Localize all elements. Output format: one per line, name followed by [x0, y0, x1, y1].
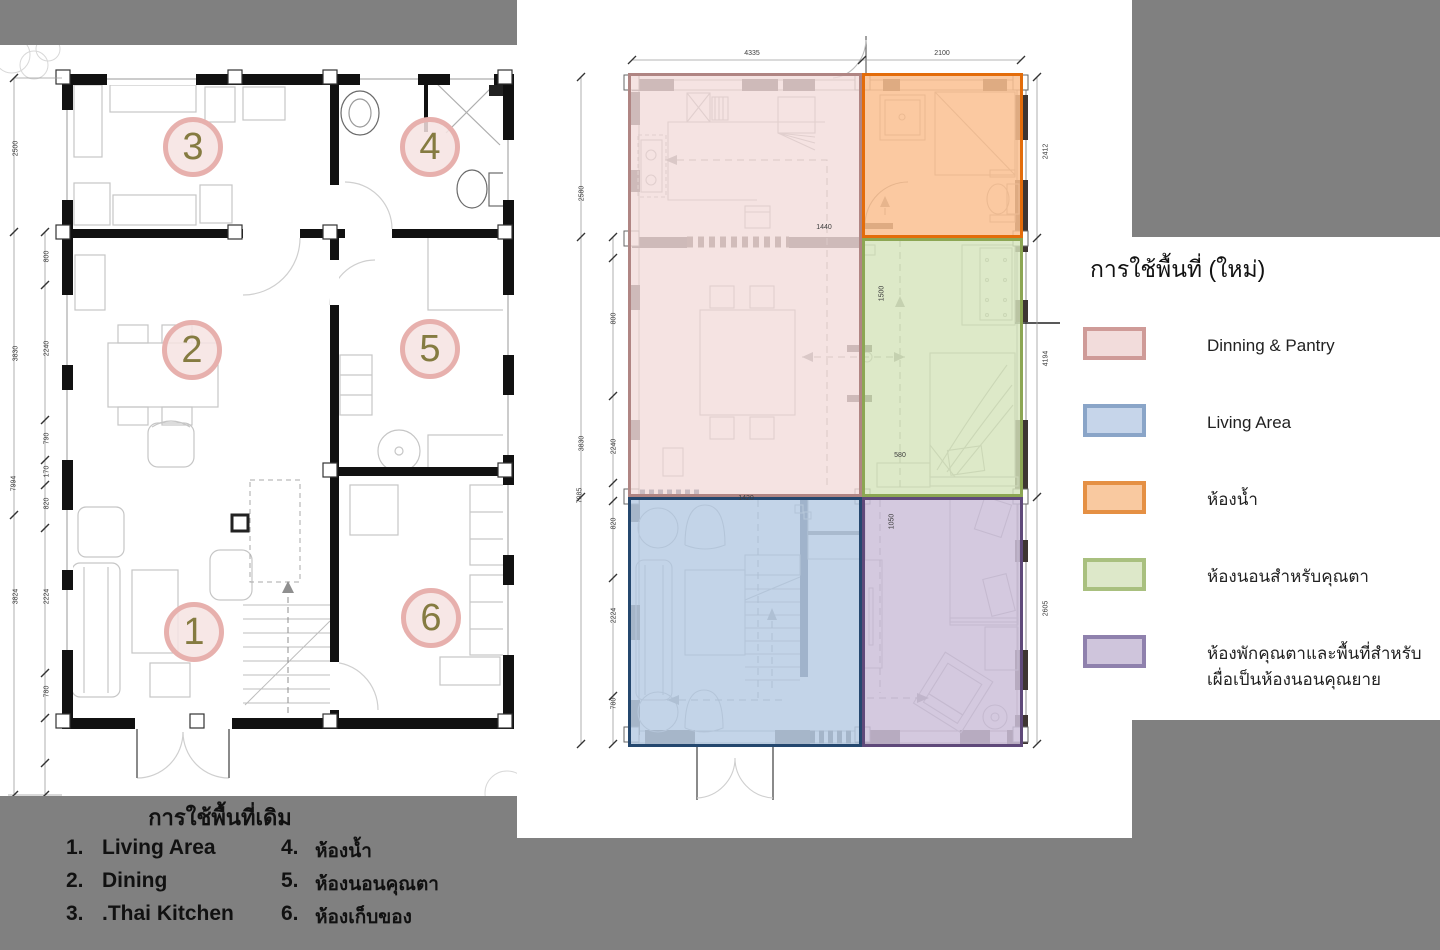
dimension-label: 2240 [44, 332, 51, 366]
dimension-label: 2100 [925, 50, 959, 57]
caption-item-number: 5. [281, 869, 313, 893]
room-marker-1: 1 [164, 602, 224, 662]
legend-label: Dinning & Pantry [1207, 336, 1335, 355]
room-marker-5: 5 [400, 319, 460, 379]
caption-item-label: ห้องนอนคุณตา [315, 869, 439, 899]
hall-column [232, 515, 248, 531]
room-number: 3 [182, 128, 203, 166]
room-number: 4 [419, 128, 440, 166]
caption-title: การใช้พื้นที่เดิม [70, 800, 370, 835]
legend-label: ห้องน้ำ [1207, 490, 1258, 509]
zone-living-area [628, 497, 862, 747]
original-plan-panel: 3 4 2 5 1 6 2500383079943824800224079017… [0, 45, 517, 796]
dimension-label: 2224 [44, 580, 51, 614]
legend-item-dining-pantry: Dinning & Pantry [1083, 327, 1440, 369]
legend-item-bathroom: ห้องน้ำ [1083, 481, 1440, 523]
zone-dining-pantry [628, 73, 862, 497]
caption-item-number: 4. [281, 836, 313, 860]
dimension-label: 2580 [579, 177, 586, 211]
caption-row: 3. .Thai Kitchen 6. ห้องเก็บของ [0, 902, 517, 934]
dimension-label: 820 [44, 487, 51, 521]
caption-item-label: ห้องน้ำ [315, 836, 372, 866]
caption-item-number: 1. [66, 836, 98, 860]
dimension-label: 3830 [13, 337, 20, 371]
legend-title: การใช้พื้นที่ (ใหม่) [1090, 252, 1265, 288]
dimension-label: 790 [44, 422, 51, 456]
stairs-original [243, 480, 330, 713]
legend-label: ห้องพักคุณตาและพื้นที่สำหรับ [1207, 644, 1422, 663]
zone-bathroom [862, 73, 1023, 238]
legend-label: Living Area [1207, 413, 1291, 432]
caption-row: 1. Living Area 4. ห้องน้ำ [0, 836, 517, 868]
dimension-label: 2224 [611, 599, 618, 633]
dimension-label: 3830 [579, 427, 586, 461]
dimension-label: 170 [44, 455, 51, 489]
room-marker-6: 6 [401, 588, 461, 648]
dimension-label: 820 [611, 507, 618, 541]
dimension-label: 1440 [807, 224, 841, 231]
dimension-label: 4194 [1043, 342, 1050, 376]
caption-row: 2. Dining 5. ห้องนอนคุณตา [0, 869, 517, 901]
room-number: 1 [183, 613, 204, 651]
dimension-lines-original [8, 78, 62, 795]
legend: การใช้พื้นที่ (ใหม่) Dinning & Pantry Li… [1083, 237, 1440, 720]
dimension-label: 800 [44, 240, 51, 274]
dimension-label: 580 [883, 452, 917, 459]
dimension-label: 4335 [735, 50, 769, 57]
legend-item-bedroom-grandpa: ห้องนอนสำหรับคุณตา [1083, 558, 1440, 600]
caption-item-number: 2. [66, 869, 98, 893]
caption-item-number: 6. [281, 902, 313, 926]
dimension-label: 2500 [13, 132, 20, 166]
room-number: 6 [420, 599, 441, 637]
legend-label: ห้องนอนสำหรับคุณตา [1207, 567, 1369, 586]
caption-item-number: 3. [66, 902, 98, 926]
legend-swatch-bedroom-grandpa [1083, 558, 1146, 591]
legend-swatch-bedroom-flex [1083, 635, 1146, 668]
dimension-label: 1420 [729, 495, 763, 502]
dimension-label: 1500 [879, 277, 886, 311]
dimension-label: 7985 [577, 479, 584, 513]
room-marker-2: 2 [162, 320, 222, 380]
zone-bedroom-flex [862, 497, 1023, 747]
room-marker-4: 4 [400, 117, 460, 177]
legend-swatch-dining [1083, 327, 1146, 360]
legend-item-bedroom-flex: ห้องพักคุณตาและพื้นที่สำหรับ เผื่อเป็นห้… [1083, 635, 1440, 705]
dimension-label: 780 [44, 675, 51, 709]
caption-item-label: .Thai Kitchen [102, 902, 234, 926]
legend-label-line2: เผื่อเป็นห้องนอนคุณยาย [1207, 670, 1381, 689]
slide-canvas: 3 4 2 5 1 6 2500383079943824800224079017… [0, 0, 1440, 950]
room-marker-3: 3 [163, 117, 223, 177]
dimension-label: 2605 [1043, 592, 1050, 626]
dimension-label: 800 [611, 302, 618, 336]
legend-swatch-bathroom [1083, 481, 1146, 514]
room-number: 2 [181, 331, 202, 369]
legend-swatch-living [1083, 404, 1146, 437]
caption-item-label: ห้องเก็บของ [315, 902, 412, 932]
dimension-label: 2240 [611, 430, 618, 464]
dimension-label: 3824 [13, 580, 20, 614]
caption-item-label: Dining [102, 869, 167, 893]
room-number: 5 [419, 330, 440, 368]
caption-item-label: Living Area [102, 836, 216, 860]
dimension-label: 7994 [11, 467, 18, 501]
original-plan-caption: การใช้พื้นที่เดิม 1. Living Area 4. ห้อง… [0, 797, 517, 942]
dimension-label: 2412 [1043, 135, 1050, 169]
new-plan-panel: 4335210025803830798580022408202224780241… [517, 0, 1132, 838]
dimension-label: 780 [611, 687, 618, 721]
legend-item-living-area: Living Area [1083, 404, 1440, 446]
dimension-label: 1050 [889, 505, 896, 539]
